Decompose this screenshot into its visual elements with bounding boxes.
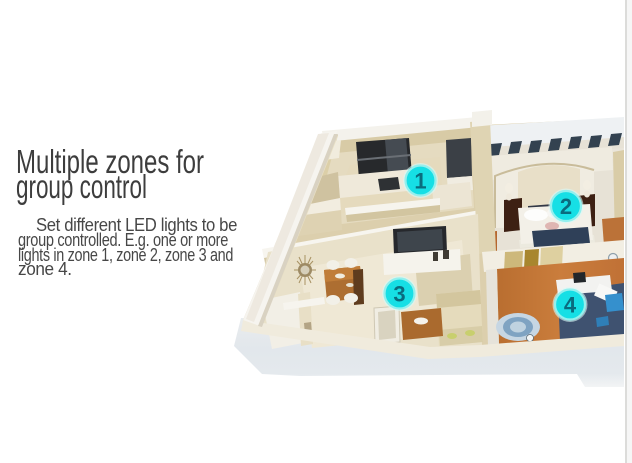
svg-text:1: 1	[414, 169, 426, 194]
svg-text:2: 2	[560, 194, 572, 219]
svg-text:4: 4	[564, 293, 577, 318]
svg-text:3: 3	[393, 282, 405, 307]
